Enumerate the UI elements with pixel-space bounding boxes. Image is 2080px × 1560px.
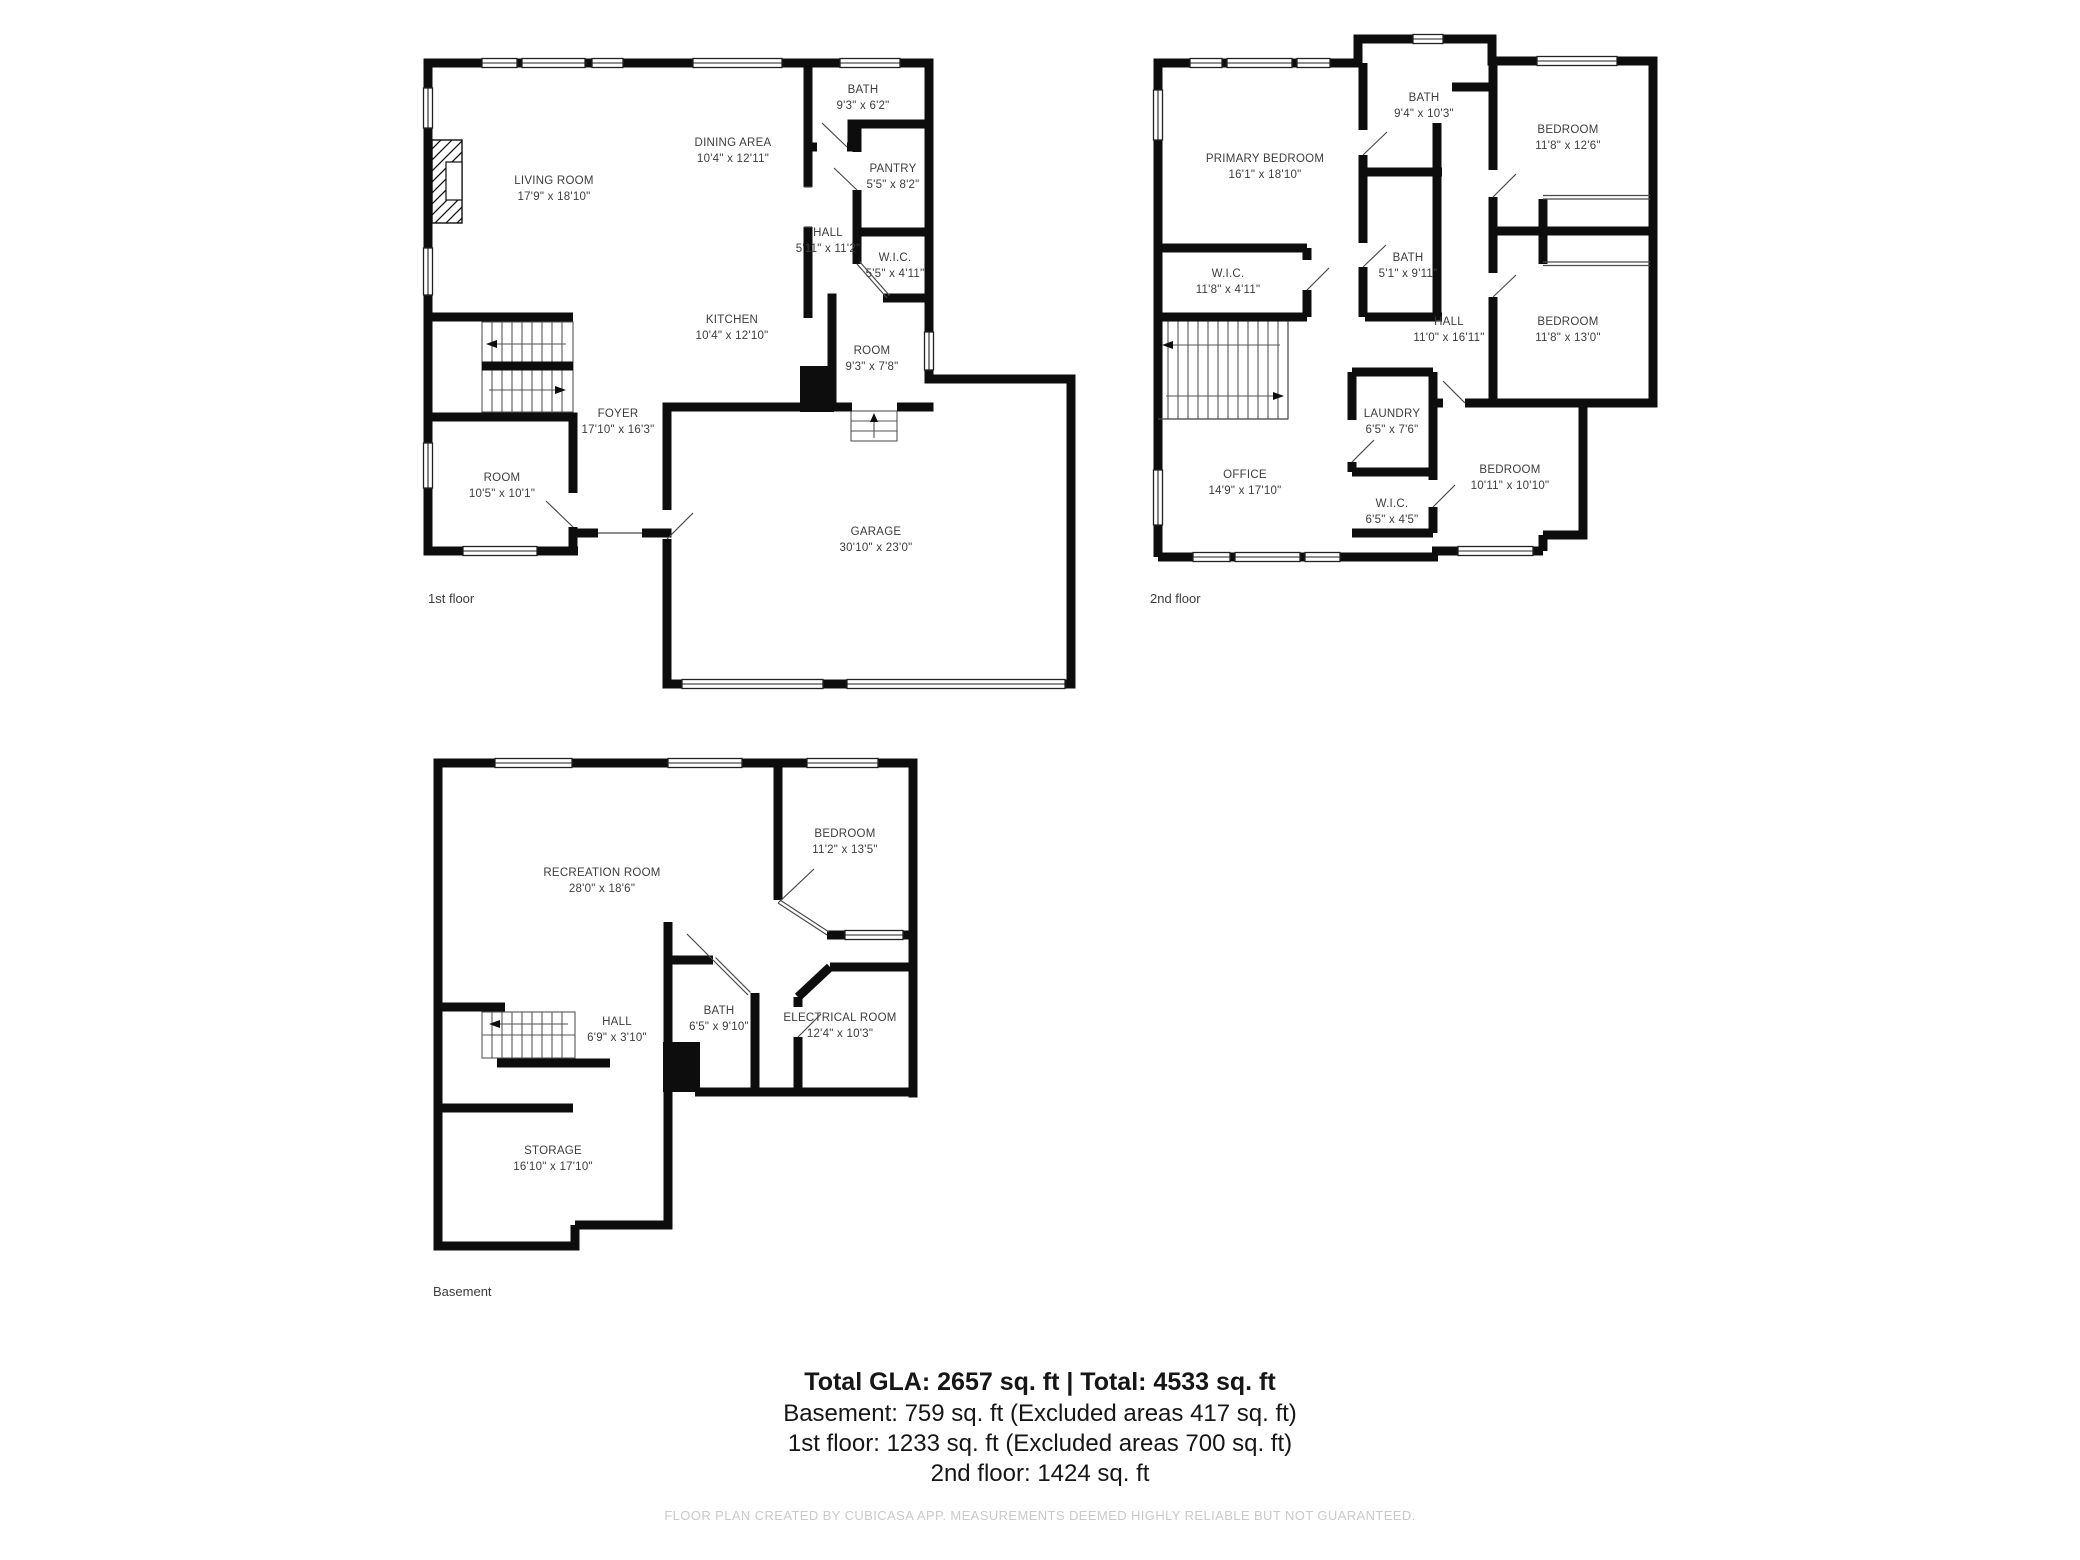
room-label-living-room: LIVING ROOM 17'9" x 18'10"	[514, 173, 593, 205]
room-dims: 11'8" x 13'0"	[1535, 330, 1600, 346]
room-name: FOYER	[598, 406, 639, 422]
room-label-bath-top: BATH 9'4" x 10'3"	[1394, 90, 1454, 122]
room-name: ROOM	[854, 343, 891, 359]
staircase-icon	[1158, 321, 1288, 419]
floor-plan-page: { "floors": { "floor1": { "label": "1st …	[0, 0, 2080, 1560]
room-dims: 5'5" x 4'11"	[866, 266, 925, 282]
room-label-hall-bsmt: HALL 6'9" x 3'10"	[587, 1014, 647, 1046]
room-label-room-upper: ROOM 9'3" x 7'8"	[845, 343, 898, 375]
room-name: BEDROOM	[1479, 462, 1540, 478]
room-dims: 11'8" x 12'6"	[1535, 138, 1600, 154]
room-name: BATH	[704, 1003, 735, 1019]
room-label-hall-2f: HALL 11'0" x 16'11"	[1413, 314, 1484, 346]
floor2-plan: PRIMARY BEDROOM 16'1" x 18'10" BATH 9'4"…	[1140, 25, 1685, 570]
floor1-sheet-label: 1st floor	[428, 591, 474, 606]
room-name: HALL	[602, 1014, 632, 1030]
room-dims: 12'4" x 10'3"	[807, 1026, 873, 1042]
room-dims: 11'2" x 13'5"	[812, 842, 877, 858]
room-label-foyer: FOYER 17'10" x 16'3"	[582, 406, 655, 438]
room-dims: 9'4" x 10'3"	[1394, 106, 1454, 122]
room-name: HALL	[813, 225, 843, 241]
room-dims: 14'9" x 17'10"	[1209, 483, 1282, 499]
room-label-bedroom-tr: BEDROOM 11'8" x 12'6"	[1535, 122, 1600, 154]
room-name: ROOM	[484, 470, 521, 486]
room-dims: 16'1" x 18'10"	[1229, 167, 1302, 183]
room-label-room-lower: ROOM 10'5" x 10'1"	[469, 470, 535, 502]
room-label-pantry: PANTRY 5'5" x 8'2"	[866, 161, 919, 193]
room-name: BEDROOM	[1537, 314, 1598, 330]
room-name: BATH	[1409, 90, 1440, 106]
room-label-wic-1f: W.I.C. 5'5" x 4'11"	[866, 250, 925, 282]
room-dims: 10'5" x 10'1"	[469, 486, 535, 502]
room-name: PANTRY	[869, 161, 916, 177]
room-label-storage: STORAGE 16'10" x 17'10"	[513, 1143, 593, 1175]
room-dims: 11'8" x 4'11"	[1196, 282, 1261, 298]
room-label-bedroom-right: BEDROOM 11'8" x 13'0"	[1535, 314, 1600, 346]
room-dims: 6'5" x 4'5"	[1365, 512, 1418, 528]
room-dims: 9'3" x 6'2"	[836, 98, 889, 114]
room-name: LIVING ROOM	[514, 173, 593, 189]
room-name: DINING AREA	[695, 135, 772, 151]
basement-sheet-label: Basement	[433, 1284, 492, 1299]
room-dims: 17'9" x 18'10"	[518, 189, 591, 205]
room-label-dining-area: DINING AREA 10'4" x 12'11"	[695, 135, 772, 167]
room-name: W.I.C.	[1212, 266, 1245, 282]
floor2-sheet-label: 2nd floor	[1150, 591, 1201, 606]
room-dims: 5'5" x 8'2"	[866, 177, 919, 193]
room-name: HALL	[1434, 314, 1464, 330]
room-dims: 6'5" x 7'6"	[1365, 422, 1418, 438]
room-dims: 5'1" x 9'11"	[1379, 266, 1438, 282]
staircase-icon	[482, 1012, 575, 1058]
room-name: GARAGE	[851, 524, 902, 540]
room-label-bedroom-bsmt: BEDROOM 11'2" x 13'5"	[812, 826, 877, 858]
room-label-bath-bsmt: BATH 6'5" x 9'10"	[689, 1003, 749, 1035]
room-label-wic-left: W.I.C. 11'8" x 4'11"	[1196, 266, 1261, 298]
room-label-kitchen: KITCHEN 10'4" x 12'10"	[696, 312, 769, 344]
room-name: BATH	[1393, 250, 1424, 266]
room-name: RECREATION ROOM	[543, 865, 660, 881]
room-label-wic-small: W.I.C. 6'5" x 4'5"	[1365, 496, 1418, 528]
room-name: PRIMARY BEDROOM	[1206, 151, 1324, 167]
room-dims: 16'10" x 17'10"	[513, 1159, 593, 1175]
room-label-laundry: LAUNDRY 6'5" x 7'6"	[1364, 406, 1421, 438]
room-dims: 11'0" x 16'11"	[1413, 330, 1484, 346]
room-label-electrical: ELECTRICAL ROOM 12'4" x 10'3"	[783, 1010, 896, 1042]
room-label-bath-1f: BATH 9'3" x 6'2"	[836, 82, 889, 114]
room-dims: 5'11" x 11'2"	[796, 241, 861, 257]
room-name: W.I.C.	[879, 250, 912, 266]
room-dims: 10'11" x 10'10"	[1471, 478, 1550, 494]
room-label-bedroom-bottom: BEDROOM 10'11" x 10'10"	[1471, 462, 1550, 494]
disclaimer-text: FLOOR PLAN CREATED BY CUBICASA APP. MEAS…	[0, 1508, 2080, 1523]
room-label-bath-mid: BATH 5'1" x 9'11"	[1379, 250, 1438, 282]
room-dims: 28'0" x 18'6"	[569, 881, 635, 897]
room-dims: 10'4" x 12'10"	[696, 328, 769, 344]
room-dims: 17'10" x 16'3"	[582, 422, 655, 438]
basement-area-line: Basement: 759 sq. ft (Excluded areas 417…	[0, 1399, 2080, 1429]
room-dims: 6'9" x 3'10"	[587, 1030, 647, 1046]
room-dims: 10'4" x 12'11"	[697, 151, 769, 167]
room-dims: 30'10" x 23'0"	[840, 540, 913, 556]
wall-block	[663, 1042, 700, 1092]
wall-block	[800, 366, 834, 412]
basement-plan: RECREATION ROOM 28'0" x 18'6" BEDROOM 11…	[425, 745, 935, 1305]
room-name: KITCHEN	[706, 312, 758, 328]
room-label-office: OFFICE 14'9" x 17'10"	[1209, 467, 1282, 499]
room-dims: 6'5" x 9'10"	[689, 1019, 749, 1035]
room-label-hall-1f: HALL 5'11" x 11'2"	[796, 225, 861, 257]
room-dims: 9'3" x 7'8"	[845, 359, 898, 375]
room-name: W.I.C.	[1376, 496, 1409, 512]
floor1-plan: LIVING ROOM 17'9" x 18'10" DINING AREA 1…	[420, 50, 1090, 700]
area-summary: Total GLA: 2657 sq. ft | Total: 4533 sq.…	[0, 1366, 2080, 1489]
room-name: OFFICE	[1223, 467, 1267, 483]
room-label-recreation: RECREATION ROOM 28'0" x 18'6"	[543, 865, 660, 897]
room-label-garage: GARAGE 30'10" x 23'0"	[840, 524, 913, 556]
room-name: BEDROOM	[814, 826, 875, 842]
garage-steps-icon	[851, 411, 897, 441]
room-name: LAUNDRY	[1364, 406, 1421, 422]
first-floor-area-line: 1st floor: 1233 sq. ft (Excluded areas 7…	[0, 1429, 2080, 1459]
room-name: STORAGE	[524, 1143, 582, 1159]
room-label-primary-bedroom: PRIMARY BEDROOM 16'1" x 18'10"	[1206, 151, 1324, 183]
total-gla-line: Total GLA: 2657 sq. ft | Total: 4533 sq.…	[0, 1366, 2080, 1399]
room-name: BEDROOM	[1537, 122, 1598, 138]
room-name: BATH	[848, 82, 879, 98]
room-name: ELECTRICAL ROOM	[783, 1010, 896, 1026]
second-floor-area-line: 2nd floor: 1424 sq. ft	[0, 1459, 2080, 1489]
